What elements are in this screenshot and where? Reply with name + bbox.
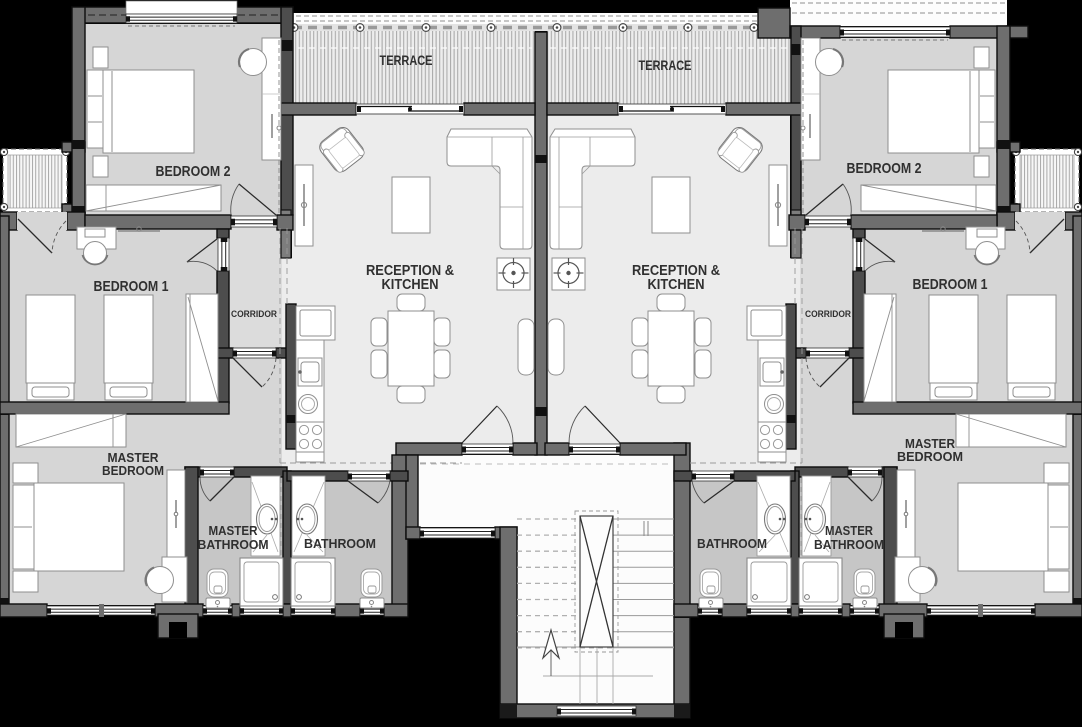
svg-text:BEDROOM 2: BEDROOM 2 <box>156 163 231 180</box>
svg-text:TERRACE: TERRACE <box>380 52 433 68</box>
svg-text:MASTER: MASTER <box>825 523 874 538</box>
svg-text:BEDROOM: BEDROOM <box>102 463 164 478</box>
svg-text:MASTER: MASTER <box>209 523 259 538</box>
svg-text:BATHROOM: BATHROOM <box>814 537 884 552</box>
svg-text:KITCHEN: KITCHEN <box>382 277 439 293</box>
svg-text:BEDROOM: BEDROOM <box>897 449 963 464</box>
svg-text:BEDROOM 1: BEDROOM 1 <box>913 276 988 293</box>
svg-text:BEDROOM 2: BEDROOM 2 <box>847 160 922 177</box>
svg-text:BATHROOM: BATHROOM <box>697 536 767 551</box>
svg-text:CORRIDOR: CORRIDOR <box>805 309 851 320</box>
svg-text:BATHROOM: BATHROOM <box>198 537 269 552</box>
svg-text:CORRIDOR: CORRIDOR <box>231 309 277 320</box>
svg-text:TERRACE: TERRACE <box>639 57 692 73</box>
svg-text:KITCHEN: KITCHEN <box>648 277 705 293</box>
svg-text:BEDROOM 1: BEDROOM 1 <box>94 278 169 295</box>
svg-text:BATHROOM: BATHROOM <box>304 536 376 551</box>
